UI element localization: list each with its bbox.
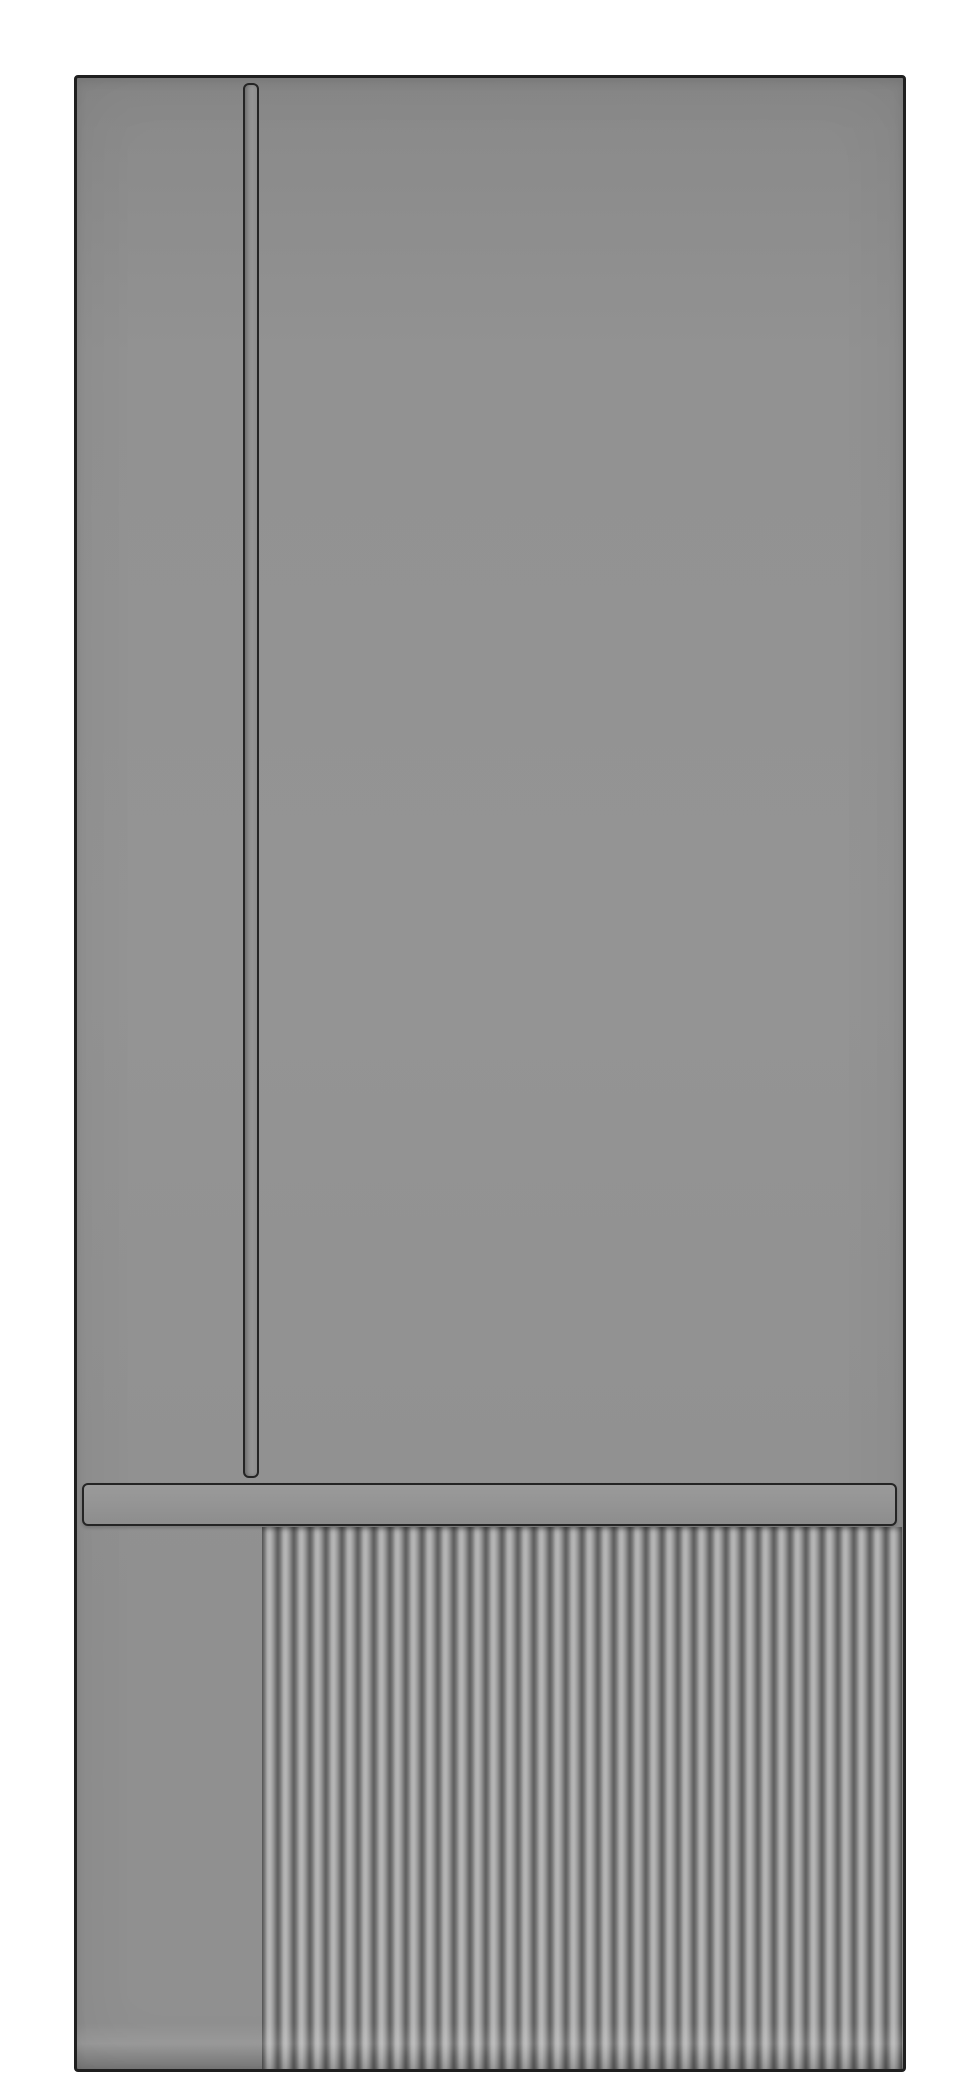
drawer-handle-rail [82, 1483, 897, 1526]
render-canvas [0, 0, 980, 2100]
freezer-drawer [77, 1526, 903, 2069]
refrigerator-body [74, 75, 906, 2072]
fluted-texture-panel [262, 1527, 902, 2069]
upper-door-handle-channel [243, 83, 259, 1478]
